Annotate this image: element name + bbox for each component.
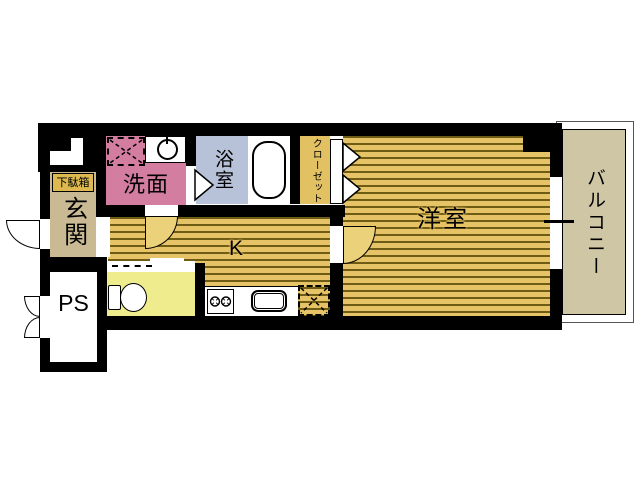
kitchen-label: K: [216, 236, 256, 262]
wall: [330, 263, 343, 316]
entrance-door-arc-icon: [6, 220, 40, 249]
pipe-space-label: PS: [50, 288, 97, 318]
wash-basin-faucet-icon: [166, 137, 168, 144]
floorplan-canvas: バルコニー 下駄箱 玄関 洗面 浴室 クローゼット PS: [0, 0, 640, 480]
sink-inner: [254, 293, 284, 309]
washroom-label: 洗面: [106, 170, 186, 202]
wall: [550, 136, 562, 176]
closet-folding-door-icon: [343, 142, 363, 204]
wall: [40, 136, 50, 219]
entrance-label: 玄関: [50, 190, 96, 254]
ps-double-door-icon: [24, 317, 40, 338]
closet-label: クローゼット: [300, 138, 330, 204]
ps-double-door-icon: [24, 296, 40, 317]
entrance-door-opening: [40, 219, 50, 249]
wall: [290, 136, 300, 204]
wall: [550, 270, 562, 316]
wall: [330, 217, 343, 226]
entrance-step: [96, 217, 110, 257]
toilet-bowl-icon: [120, 283, 147, 312]
bathtub-icon: [252, 141, 286, 199]
balcony-window-tick: [544, 220, 574, 223]
balcony-label: バルコニー: [562, 158, 626, 288]
entry-alcove: [71, 138, 83, 152]
wall: [95, 316, 562, 330]
toilet-door-opening: [150, 258, 184, 272]
entry-alcove: [50, 151, 83, 165]
wall: [96, 205, 345, 217]
stove-burners-icon: [207, 289, 234, 314]
room-door-opening: [330, 226, 343, 263]
washing-machine-x-icon: [107, 137, 145, 166]
wall: [186, 136, 196, 168]
closet-door-leaf: [330, 139, 343, 204]
western-room-label: 洋室: [403, 204, 483, 236]
ps-door-opening: [40, 296, 50, 338]
balcony-window: [550, 176, 562, 270]
refrigerator-x-icon: [298, 285, 330, 316]
bathroom-folding-door-icon: [194, 168, 216, 202]
toilet-sliding-door-icon: [112, 265, 152, 267]
wall: [106, 123, 562, 136]
wall: [195, 263, 205, 316]
